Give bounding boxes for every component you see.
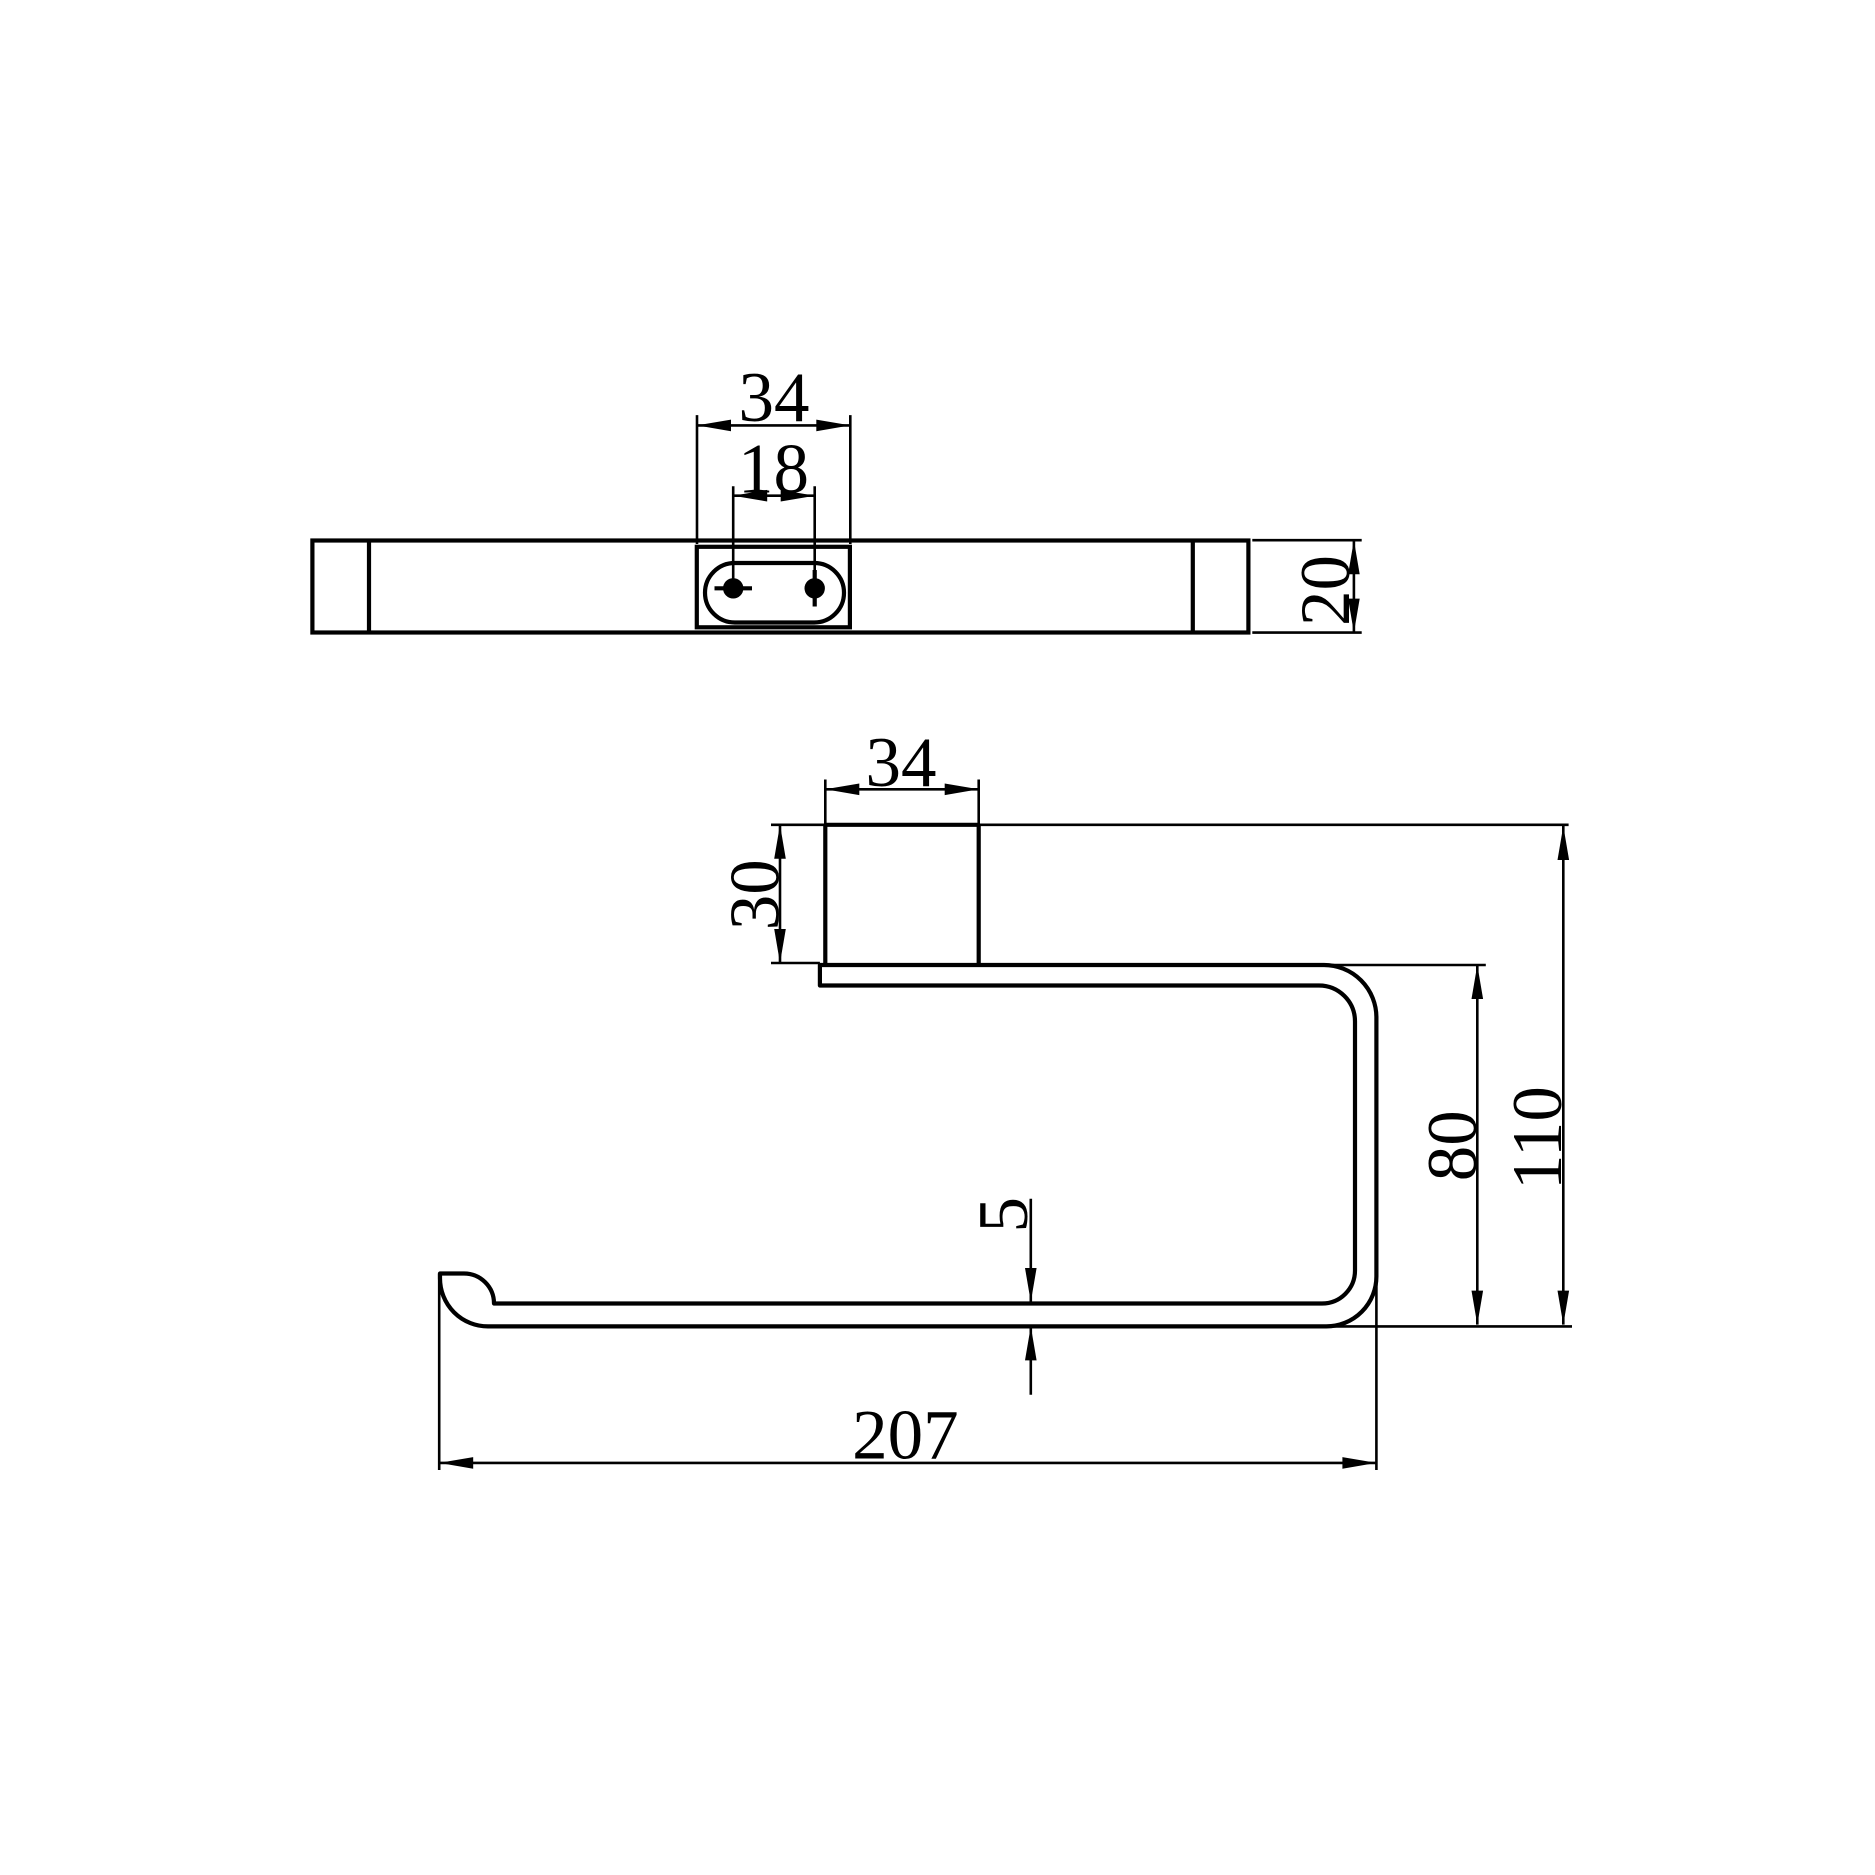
- svg-text:207: 207: [852, 1396, 959, 1474]
- svg-text:110: 110: [1499, 1086, 1577, 1190]
- svg-text:30: 30: [717, 859, 795, 930]
- svg-text:18: 18: [738, 430, 809, 508]
- svg-text:34: 34: [739, 359, 810, 437]
- svg-text:34: 34: [866, 724, 937, 802]
- svg-text:80: 80: [1414, 1110, 1492, 1181]
- svg-text:5: 5: [965, 1197, 1043, 1233]
- svg-text:20: 20: [1287, 555, 1365, 626]
